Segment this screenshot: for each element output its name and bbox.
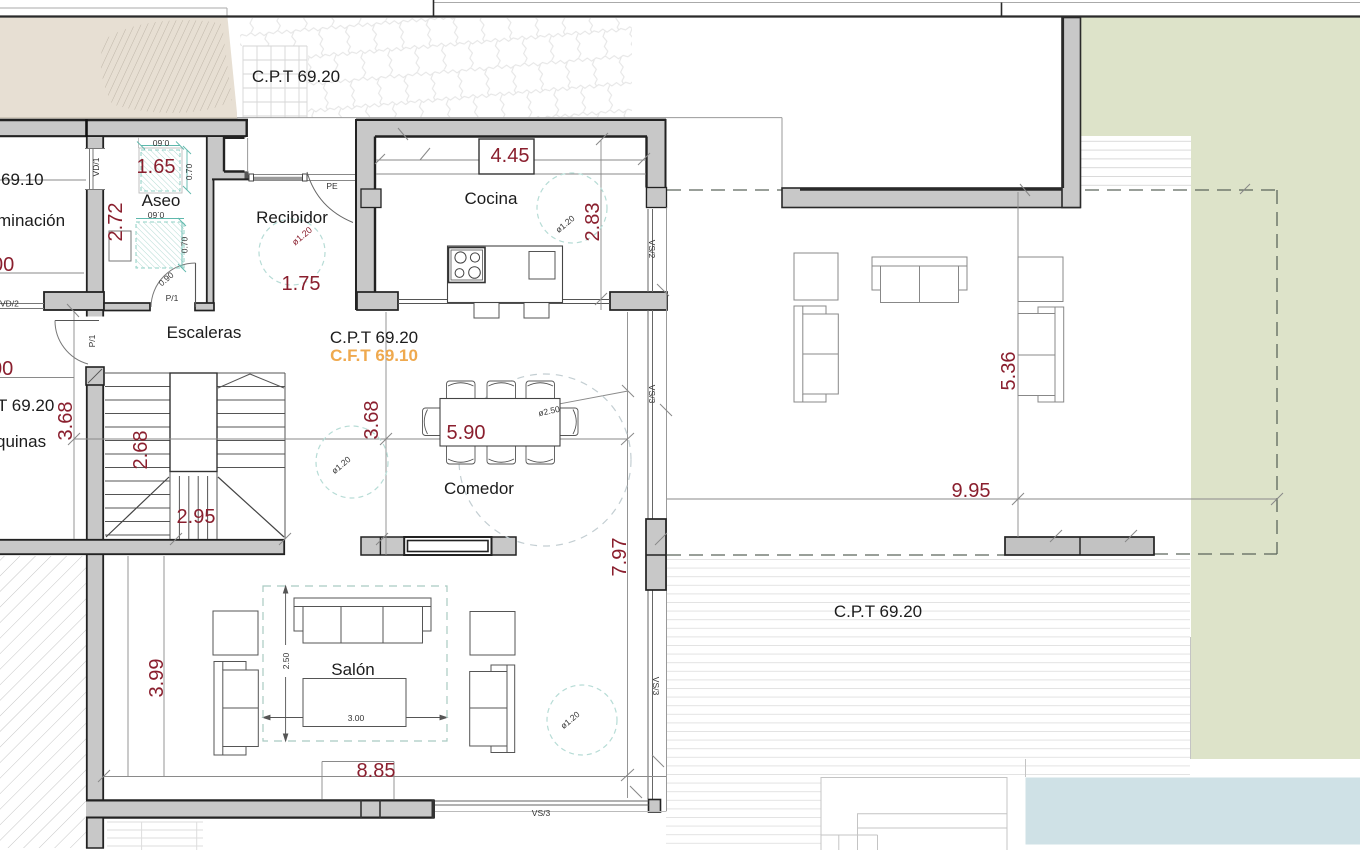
svg-text:Aseo: Aseo: [142, 191, 181, 210]
svg-text:Recibidor: Recibidor: [256, 208, 328, 227]
svg-text:4.45: 4.45: [491, 145, 530, 167]
svg-text:5.90: 5.90: [447, 422, 486, 444]
svg-text:9.95: 9.95: [952, 480, 991, 502]
svg-text:PE: PE: [326, 181, 338, 191]
svg-text:VS/3: VS/3: [647, 385, 657, 404]
svg-text:C.P.T 69.20: C.P.T 69.20: [252, 67, 340, 86]
svg-text:Comedor: Comedor: [444, 479, 514, 498]
svg-text:3.68: 3.68: [361, 401, 383, 440]
svg-text:C.P.T 69.20: C.P.T 69.20: [330, 328, 418, 347]
svg-text:5.36: 5.36: [998, 352, 1020, 391]
svg-text:P/1: P/1: [166, 293, 179, 303]
svg-text:T 69.20: T 69.20: [0, 396, 54, 415]
svg-text:C.P.T 69.20: C.P.T 69.20: [834, 602, 922, 621]
svg-text:VS/2: VS/2: [647, 240, 657, 259]
svg-text:7.97: 7.97: [609, 538, 631, 577]
svg-text:0.60: 0.60: [152, 138, 169, 148]
svg-text:2.68: 2.68: [130, 431, 152, 470]
svg-text:minación: minación: [0, 211, 65, 230]
svg-text:Salón: Salón: [331, 660, 374, 679]
svg-text:1.75: 1.75: [282, 273, 321, 295]
svg-text:3.99: 3.99: [146, 659, 168, 698]
svg-text:VS/3: VS/3: [651, 677, 661, 696]
svg-text:2.95: 2.95: [177, 506, 216, 528]
svg-text:VS/3: VS/3: [532, 808, 551, 818]
svg-text:0.70: 0.70: [184, 163, 194, 180]
svg-text:0.60: 0.60: [147, 210, 164, 220]
svg-text:Escaleras: Escaleras: [167, 323, 242, 342]
svg-text:3.00: 3.00: [348, 713, 365, 723]
svg-text:P/1: P/1: [87, 334, 97, 347]
svg-text:quinas: quinas: [0, 432, 46, 451]
svg-text:00: 00: [0, 358, 13, 380]
svg-text:Cocina: Cocina: [465, 189, 518, 208]
svg-text:VD/2: VD/2: [0, 299, 19, 309]
svg-text:1.65: 1.65: [137, 156, 176, 178]
svg-text:69.10: 69.10: [1, 170, 44, 189]
svg-text:8.85: 8.85: [357, 760, 396, 782]
svg-text:2.50: 2.50: [281, 652, 291, 669]
svg-text:0.70: 0.70: [180, 236, 190, 253]
svg-text:C.F.T 69.10: C.F.T 69.10: [330, 346, 418, 365]
svg-text:2.72: 2.72: [105, 203, 127, 242]
svg-text:2.83: 2.83: [582, 203, 604, 242]
svg-text:VD/1: VD/1: [91, 157, 101, 176]
svg-text:00: 00: [0, 254, 14, 276]
svg-text:3.68: 3.68: [55, 402, 77, 441]
